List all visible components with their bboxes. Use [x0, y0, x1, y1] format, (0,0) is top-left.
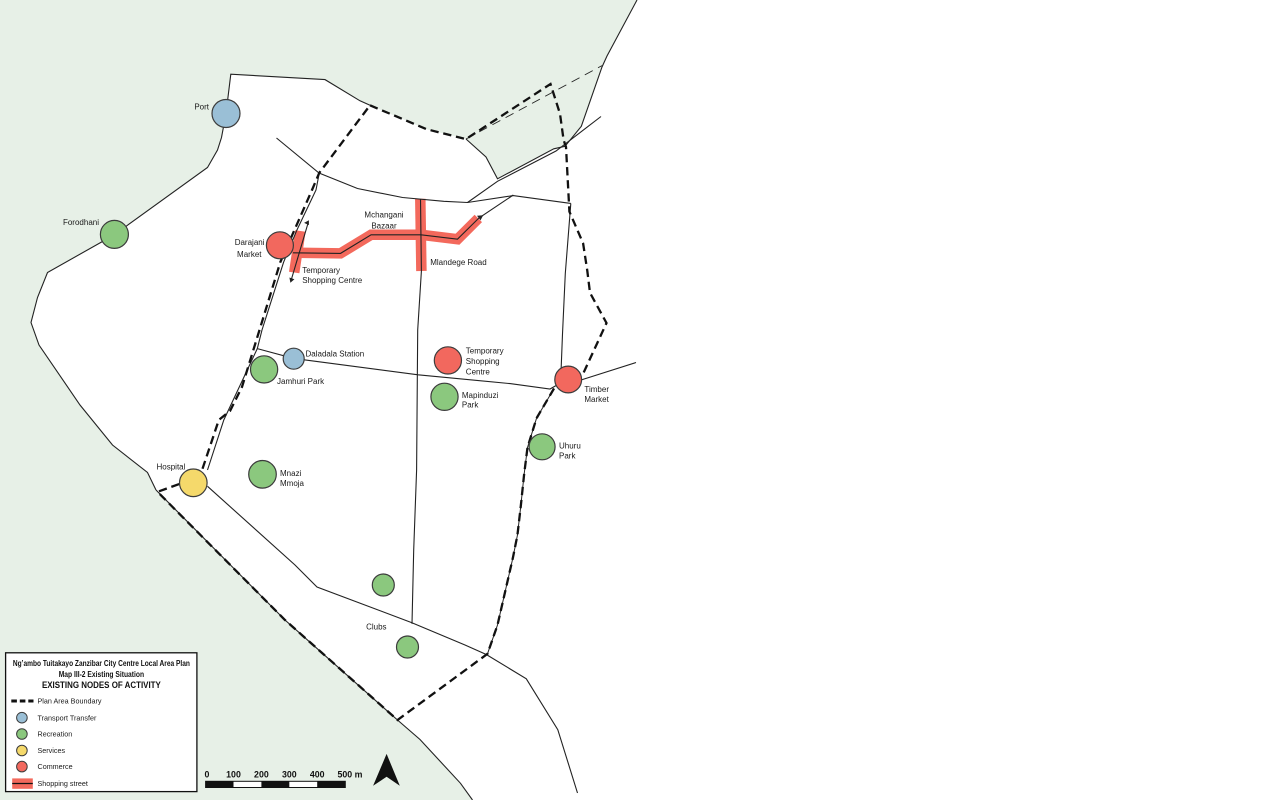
svg-text:Market: Market — [237, 250, 262, 259]
svg-text:Darajani: Darajani — [235, 238, 265, 247]
svg-text:400: 400 — [310, 770, 325, 780]
svg-text:Clubs: Clubs — [366, 623, 386, 632]
svg-text:0: 0 — [204, 770, 209, 780]
svg-text:Temporary: Temporary — [466, 347, 504, 356]
svg-text:100: 100 — [226, 770, 241, 780]
svg-text:Park: Park — [559, 452, 576, 461]
svg-text:Commerce: Commerce — [38, 762, 73, 771]
svg-text:Uhuru: Uhuru — [559, 442, 581, 451]
svg-text:Recreation: Recreation — [38, 730, 73, 739]
svg-text:Services: Services — [38, 746, 66, 755]
svg-text:Mapinduzi: Mapinduzi — [462, 391, 499, 400]
svg-text:Shopping: Shopping — [466, 357, 500, 366]
svg-text:Mchangani: Mchangani — [364, 211, 403, 220]
svg-text:500 m: 500 m — [338, 770, 363, 780]
svg-text:EXISTING NODES OF ACTIVITY: EXISTING NODES OF ACTIVITY — [42, 679, 162, 690]
svg-text:Port: Port — [194, 103, 209, 112]
svg-text:Jamhuri Park: Jamhuri Park — [277, 377, 325, 386]
svg-text:Transport Transfer: Transport Transfer — [38, 713, 97, 722]
svg-text:Mlandege Road: Mlandege Road — [430, 258, 486, 267]
svg-text:Hospital: Hospital — [157, 463, 186, 472]
svg-text:Shopping street: Shopping street — [38, 779, 88, 788]
svg-text:Ng’ambo Tuitakayo Zanzibar Cit: Ng’ambo Tuitakayo Zanzibar City Centre L… — [13, 659, 190, 668]
svg-text:Mnazi: Mnazi — [280, 469, 302, 478]
svg-text:Plan Area Boundary: Plan Area Boundary — [38, 697, 102, 706]
svg-text:Temporary: Temporary — [302, 266, 340, 275]
svg-text:300: 300 — [282, 770, 297, 780]
svg-text:Park: Park — [462, 401, 479, 410]
svg-text:Mmoja: Mmoja — [280, 479, 305, 488]
svg-text:Forodhani: Forodhani — [63, 218, 99, 227]
svg-text:Timber: Timber — [584, 385, 609, 394]
svg-text:200: 200 — [254, 770, 269, 780]
svg-text:Centre: Centre — [466, 367, 491, 376]
svg-text:Daladala Station: Daladala Station — [306, 350, 365, 359]
svg-text:Bazaar: Bazaar — [371, 222, 397, 231]
svg-text:Shopping Centre: Shopping Centre — [302, 276, 363, 285]
svg-text:Market: Market — [584, 395, 609, 404]
